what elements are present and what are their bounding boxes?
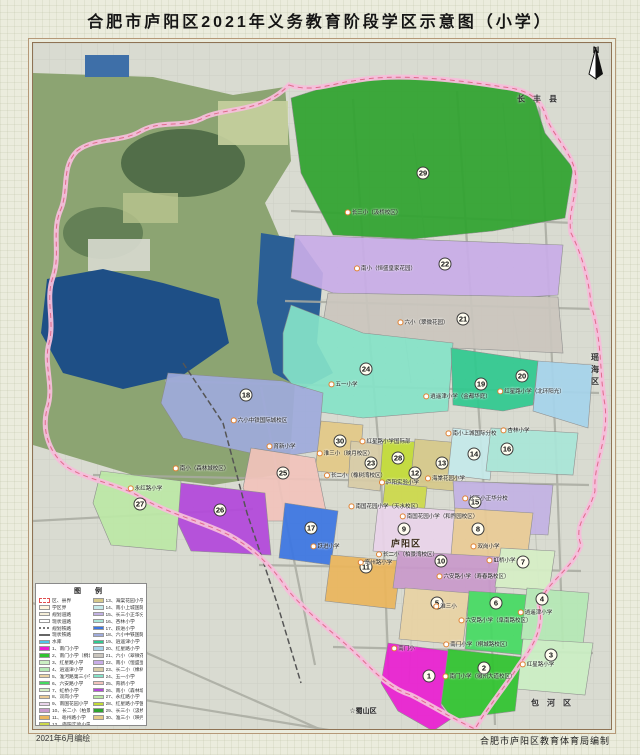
school-site-marker xyxy=(310,543,316,549)
legend-item-label: 水库 xyxy=(52,638,62,645)
legend-item-label: 7、虹桥小学 xyxy=(52,687,79,694)
legend-item-label: 26、南小（森林城校区） xyxy=(106,687,144,694)
legend-swatch xyxy=(93,619,104,624)
publisher: 合肥市庐阳区教育体育局编制 xyxy=(480,734,610,747)
school-label: 长二小（橡树湾校区） xyxy=(324,472,386,479)
school-label: 跃进小学 xyxy=(310,543,339,550)
legend-item-label: 3、红星路小学 xyxy=(52,659,83,666)
legend-item-label: 规划道路 xyxy=(52,611,71,618)
legend-item-label: 14、南小上城国际分校 xyxy=(106,604,144,611)
legend-item: 19、逍遥津小学（金都华庭） xyxy=(93,638,144,645)
school-label: 南门小学（徽州大道校区） xyxy=(442,673,515,680)
legend-item: 12、庐阳实验小学 xyxy=(39,721,90,726)
school-label: 六小中铁国际城校区 xyxy=(231,417,288,424)
school-label: 红星路小学国际部 xyxy=(359,438,410,445)
legend-item-label: 9、南国花园小学 xyxy=(52,700,88,707)
legend-swatch xyxy=(93,674,104,679)
school-site-marker xyxy=(486,557,492,563)
school-site-marker xyxy=(500,427,506,433)
legend-item: 16、杏林小学 xyxy=(93,618,144,625)
legend-item: 23、长二小（橡树湾校区） xyxy=(93,666,144,673)
legend-item: 28、红星路小学国际部 xyxy=(93,700,144,707)
legend-item-label: 27、永红路小学 xyxy=(106,693,140,700)
legend-swatch xyxy=(39,646,50,651)
legend-swatch xyxy=(39,640,50,645)
zone-number-badge: 8 xyxy=(472,523,485,536)
legend-item: 18、六小中铁国际城校区 xyxy=(93,631,144,638)
legend-item: 24、五一小学 xyxy=(93,673,144,680)
legend-swatch xyxy=(39,667,50,672)
school-label: 海棠花园小学 xyxy=(425,475,465,482)
legend-item-label: 24、五一小学 xyxy=(106,673,135,680)
legend-item: 2、南门小学（桐城路校区） xyxy=(39,652,90,659)
school-site-marker xyxy=(359,438,365,444)
district-name-label: 庐阳区 xyxy=(391,537,421,550)
legend-item: 1、南门小学 xyxy=(39,645,90,652)
legend-item-label: 17、跃进小学 xyxy=(106,625,135,632)
legend-swatch xyxy=(93,626,104,631)
school-label: 庐阳实验小学 xyxy=(379,479,419,486)
legend-swatch xyxy=(93,660,104,665)
edit-date: 2021年6月编绘 xyxy=(36,733,90,744)
legend-item-label: 现状道路 xyxy=(52,618,71,625)
school-site-marker xyxy=(173,465,179,471)
legend-item-label: 22、南小（恒盛皇家花园） xyxy=(106,659,144,666)
legend-item-label: 15、长三小正华分校 xyxy=(106,611,144,618)
legend-swatch xyxy=(93,702,104,707)
legend-item: 13、海棠花园小学 xyxy=(93,597,144,604)
legend-swatch xyxy=(39,660,50,665)
legend-item: 规划铁路 xyxy=(39,625,90,632)
school-label: 南门小学（桐城路校区） xyxy=(443,641,511,648)
legend-swatch xyxy=(93,646,104,651)
legend-item: 8、双岗小学 xyxy=(39,693,90,700)
zone-number-badge: 1 xyxy=(423,670,436,683)
school-label: 南小上城国际分校 xyxy=(445,430,496,437)
school-site-marker xyxy=(497,388,503,394)
school-label: 双岗小学 xyxy=(470,543,499,550)
legend-item-label: 23、长二小（橡树湾校区） xyxy=(106,666,144,673)
neighbor-district-label: ☆蜀山区 xyxy=(349,706,376,716)
legend-swatch xyxy=(93,681,104,686)
legend-item: 20、红星路小学（北环阳光） xyxy=(93,645,144,652)
school-label: 六小（翠微花园） xyxy=(397,319,448,326)
school-site-marker xyxy=(376,551,382,557)
legend-swatch xyxy=(39,702,50,707)
legend-col-right: 13、海棠花园小学14、南小上城国际分校15、长三小正华分校16、杏林小学17、… xyxy=(93,597,144,726)
legend-swatch xyxy=(93,633,104,638)
zone-number-badge: 14 xyxy=(468,448,481,461)
legend-swatch xyxy=(39,681,50,686)
school-site-marker xyxy=(391,645,397,651)
legend-swatch xyxy=(39,695,50,700)
legend-item: 3、红星路小学 xyxy=(39,659,90,666)
school-label: 南小（森林城校区） xyxy=(173,465,230,472)
school-site-marker xyxy=(231,417,237,423)
legend-swatch xyxy=(93,695,104,700)
legend-swatch xyxy=(39,605,50,610)
zone-number-badge: 6 xyxy=(490,597,503,610)
legend-item-label: 10、长二小（柏景湾校区） xyxy=(52,707,90,714)
legend-item-label: 1、南门小学 xyxy=(52,645,79,652)
school-site-marker xyxy=(462,495,468,501)
legend-item-label: 21、六小（翠微花园） xyxy=(106,652,144,659)
legend-item-label: 13、海棠花园小学 xyxy=(106,597,144,604)
legend-swatch xyxy=(39,598,50,603)
legend-item: 22、南小（恒盛皇家花园） xyxy=(93,659,144,666)
neighbor-district-label: 包河区 xyxy=(531,698,579,709)
legend-item: 4、逍遥津小学 xyxy=(39,666,90,673)
school-site-marker xyxy=(354,265,360,271)
legend-item: 区、县界 xyxy=(39,597,90,604)
legend-item-label: 规划铁路 xyxy=(52,625,71,632)
legend-item: 现状道路 xyxy=(39,618,90,625)
legend-item: 25、育新小学 xyxy=(93,680,144,687)
zone-number-badge: 23 xyxy=(365,457,378,470)
legend-item: 水库 xyxy=(39,638,90,645)
school-site-marker xyxy=(128,485,134,491)
legend-item-label: 5、淮河路第三小学 xyxy=(52,673,90,680)
zone-number-badge: 28 xyxy=(392,452,405,465)
school-label: 淮三小 xyxy=(433,603,457,610)
school-label: 红星路小学 xyxy=(520,661,555,668)
legend-swatch xyxy=(39,634,50,636)
legend-swatch xyxy=(93,640,104,645)
legend-item-label: 25、育新小学 xyxy=(106,680,135,687)
compass: N xyxy=(585,46,607,55)
legend-swatch xyxy=(39,674,50,679)
legend-item: 现状铁路 xyxy=(39,631,90,638)
school-site-marker xyxy=(425,475,431,481)
zone-number-badge: 22 xyxy=(439,258,452,271)
school-site-marker xyxy=(470,543,476,549)
legend-item: 17、跃进小学 xyxy=(93,625,144,632)
zone-number-badge: 26 xyxy=(214,504,227,517)
legend-item-label: 11、亳州路小学 xyxy=(52,714,86,721)
north-arrow-icon xyxy=(585,46,607,80)
map-legend: 图 例 区、县界学区界规划道路现状道路规划铁路现状铁路水库1、南门小学2、南门小… xyxy=(35,583,147,726)
school-site-marker xyxy=(445,430,451,436)
school-label: 五一小学 xyxy=(328,381,357,388)
zone-number-badge: 25 xyxy=(277,467,290,480)
zone-number-badge: 9 xyxy=(398,523,411,536)
legend-item-label: 12、庐阳实验小学 xyxy=(52,721,90,726)
legend-item-label: 8、双岗小学 xyxy=(52,693,79,700)
legend-swatch xyxy=(93,688,104,693)
school-label: 南小（恒盛皇家花园） xyxy=(354,265,416,272)
school-label: 长二小（柏景湾校区） xyxy=(376,551,438,558)
school-site-marker xyxy=(443,641,449,647)
legend-item-label: 18、六小中铁国际城校区 xyxy=(106,631,144,638)
zone-number-badge: 4 xyxy=(536,593,549,606)
legend-swatch xyxy=(93,653,104,658)
legend-item-label: 4、逍遥津小学 xyxy=(52,666,83,673)
legend-item: 9、南国花园小学 xyxy=(39,700,90,707)
zone-number-badge: 12 xyxy=(409,467,422,480)
legend-title: 图 例 xyxy=(39,586,143,596)
legend-item-label: 学区界 xyxy=(52,604,66,611)
school-label: 逍遥津小学（金都华庭） xyxy=(423,393,491,400)
school-site-marker xyxy=(345,209,351,215)
zone-number-badge: 17 xyxy=(305,522,318,535)
legend-item: 26、南小（森林城校区） xyxy=(93,687,144,694)
school-site-marker xyxy=(266,443,272,449)
school-site-marker xyxy=(328,381,334,387)
school-label: 逍遥津小学 xyxy=(518,609,553,616)
legend-col-left: 区、县界学区界规划道路现状道路规划铁路现状铁路水库1、南门小学2、南门小学（桐城… xyxy=(39,597,90,726)
page-title: 合肥市庐阳区2021年义务教育阶段学区示意图（小学） xyxy=(0,8,640,32)
school-label: 南门小 xyxy=(391,645,415,652)
zone-number-badge: 13 xyxy=(436,457,449,470)
zone-number-badge: 20 xyxy=(516,370,529,383)
legend-item-label: 29、长三小（汲桥校区） xyxy=(106,707,144,714)
legend-item-label: 19、逍遥津小学（金都华庭） xyxy=(106,638,144,645)
legend-item: 27、永红路小学 xyxy=(93,693,144,700)
zone-number-badge: 18 xyxy=(240,389,253,402)
legend-swatch xyxy=(39,627,50,629)
school-label: 长三小正华分校 xyxy=(462,495,508,502)
school-site-marker xyxy=(458,617,464,623)
legend-item-label: 28、红星路小学国际部 xyxy=(106,700,144,707)
school-label: 六安路小学（寿春路校区） xyxy=(436,573,509,580)
legend-item-label: 2、南门小学（桐城路校区） xyxy=(52,652,90,659)
zone-number-badge: 21 xyxy=(457,313,470,326)
legend-item: 15、长三小正华分校 xyxy=(93,611,144,618)
school-site-marker xyxy=(436,573,442,579)
legend-swatch xyxy=(93,715,104,720)
school-label: 南国花园小学（天水校区） xyxy=(348,503,421,510)
school-label: 杏林小学 xyxy=(500,427,529,434)
school-label: 六安路小学（阜南路校区） xyxy=(458,617,531,624)
school-label: 亳州路小学 xyxy=(358,559,393,566)
legend-swatch xyxy=(93,667,104,672)
legend-item: 14、南小上城国际分校 xyxy=(93,604,144,611)
legend-item: 7、虹桥小学 xyxy=(39,687,90,694)
school-site-marker xyxy=(379,479,385,485)
zone-number-badge: 7 xyxy=(517,556,530,569)
school-site-marker xyxy=(442,673,448,679)
zone-number-badge: 24 xyxy=(360,363,373,376)
legend-swatch xyxy=(93,605,104,610)
legend-swatch xyxy=(93,612,104,617)
school-label: 淮三小（映月校区） xyxy=(317,450,374,457)
zone-number-badge: 19 xyxy=(475,378,488,391)
school-site-marker xyxy=(397,319,403,325)
school-site-marker xyxy=(518,609,524,615)
zone-number-badge: 29 xyxy=(417,167,430,180)
legend-swatch xyxy=(93,708,104,713)
zone-number-badge: 30 xyxy=(334,435,347,448)
neighbor-district-label: 瑶海区 xyxy=(590,353,601,389)
legend-item: 规划道路 xyxy=(39,611,90,618)
school-label: 育新小学 xyxy=(266,443,295,450)
legend-item-label: 20、红星路小学（北环阳光） xyxy=(106,645,144,652)
school-site-marker xyxy=(400,513,406,519)
legend-item: 21、六小（翠微花园） xyxy=(93,652,144,659)
zone-number-badge: 16 xyxy=(501,443,514,456)
legend-item: 11、亳州路小学 xyxy=(39,714,90,721)
school-site-marker xyxy=(358,559,364,565)
school-label: 永红路小学 xyxy=(128,485,163,492)
legend-swatch xyxy=(93,598,104,603)
legend-item-label: 30、淮三小（映月校区） xyxy=(106,714,144,721)
legend-item: 6、六安路小学 xyxy=(39,680,90,687)
school-label: 虹桥小学 xyxy=(486,557,515,564)
legend-swatch xyxy=(39,653,50,658)
legend-item-label: 16、杏林小学 xyxy=(106,618,135,625)
legend-item: 学区界 xyxy=(39,604,90,611)
school-site-marker xyxy=(317,450,323,456)
legend-item: 29、长三小（汲桥校区） xyxy=(93,707,144,714)
school-site-marker xyxy=(324,472,330,478)
school-label: 南国花园小学（和煦园校区） xyxy=(400,513,479,520)
school-site-marker xyxy=(520,661,526,667)
neighbor-district-label: 长丰县 xyxy=(517,94,565,105)
school-label: 长三小（汲桥校区） xyxy=(345,209,402,216)
legend-swatch xyxy=(39,722,50,726)
district-map: 1234567891011121314151617181920212223242… xyxy=(32,42,612,730)
school-site-marker xyxy=(423,393,429,399)
legend-item: 30、淮三小（映月校区） xyxy=(93,714,144,721)
legend-swatch xyxy=(39,715,50,720)
legend-swatch xyxy=(39,688,50,693)
school-label: 红星路小学（北环阳光） xyxy=(497,388,565,395)
school-site-marker xyxy=(348,503,354,509)
legend-item-label: 6、六安路小学 xyxy=(52,680,83,687)
legend-item-label: 区、县界 xyxy=(52,597,71,604)
zone-number-badge: 3 xyxy=(545,649,558,662)
legend-item: 10、长二小（柏景湾校区） xyxy=(39,707,90,714)
school-site-marker xyxy=(433,603,439,609)
legend-item: 5、淮河路第三小学 xyxy=(39,673,90,680)
legend-swatch xyxy=(39,612,50,617)
legend-swatch xyxy=(39,619,50,624)
zone-number-badge: 27 xyxy=(134,498,147,511)
legend-item-label: 现状铁路 xyxy=(52,631,71,638)
legend-swatch xyxy=(39,708,50,713)
